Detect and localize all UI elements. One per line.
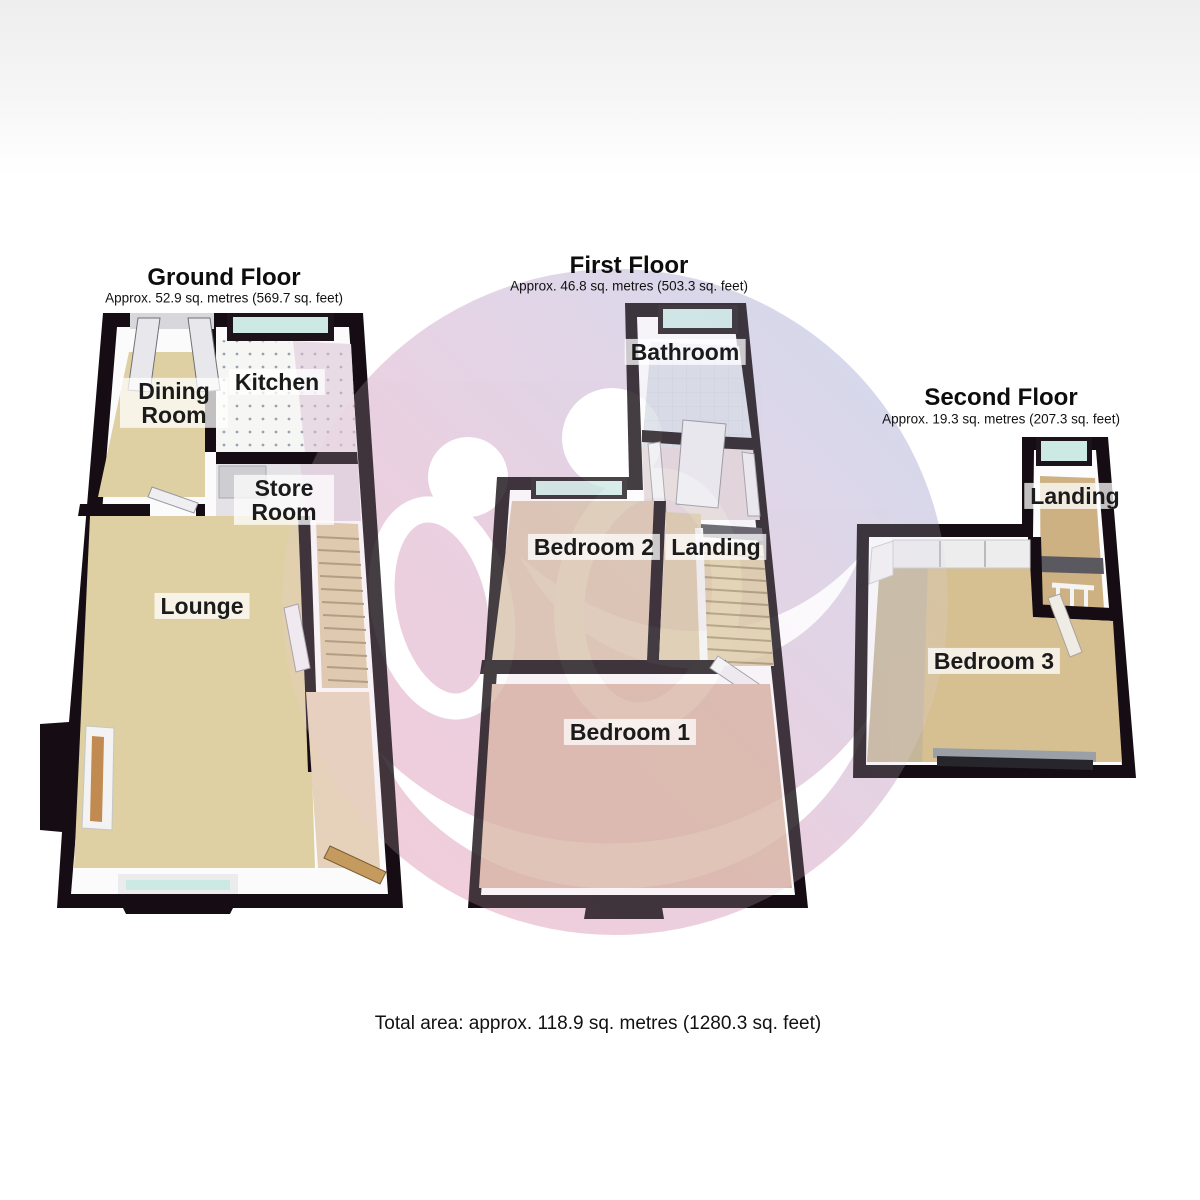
room-label-dining-room: Dining Room — [120, 378, 228, 428]
ground-floor-title: Ground Floor — [147, 264, 300, 292]
floorplan-image: Ground Floor Approx. 52.9 sq. metres (56… — [0, 0, 1200, 1200]
watermark-overlay — [282, 269, 948, 935]
room-label-kitchen: Kitchen — [229, 369, 325, 395]
ground-floor-area: Approx. 52.9 sq. metres (569.7 sq. feet) — [105, 291, 343, 306]
first-floor-area: Approx. 46.8 sq. metres (503.3 sq. feet) — [510, 279, 748, 294]
first-floor-title: First Floor — [570, 252, 689, 280]
room-label-lounge: Lounge — [154, 593, 249, 619]
second-floor-area: Approx. 19.3 sq. metres (207.3 sq. feet) — [882, 412, 1120, 427]
room-label-bedroom-2: Bedroom 2 — [528, 534, 660, 560]
second-floor-title: Second Floor — [924, 384, 1077, 412]
room-label-store-room: Store Room — [234, 475, 334, 525]
room-label-bathroom: Bathroom — [625, 339, 746, 365]
room-label-bedroom-3: Bedroom 3 — [928, 648, 1060, 674]
room-label-bedroom-1: Bedroom 1 — [564, 719, 696, 745]
room-label-landing-first: Landing — [665, 534, 766, 560]
room-label-landing-second: Landing — [1024, 483, 1125, 509]
total-area-text: Total area: approx. 118.9 sq. metres (12… — [375, 1013, 821, 1035]
